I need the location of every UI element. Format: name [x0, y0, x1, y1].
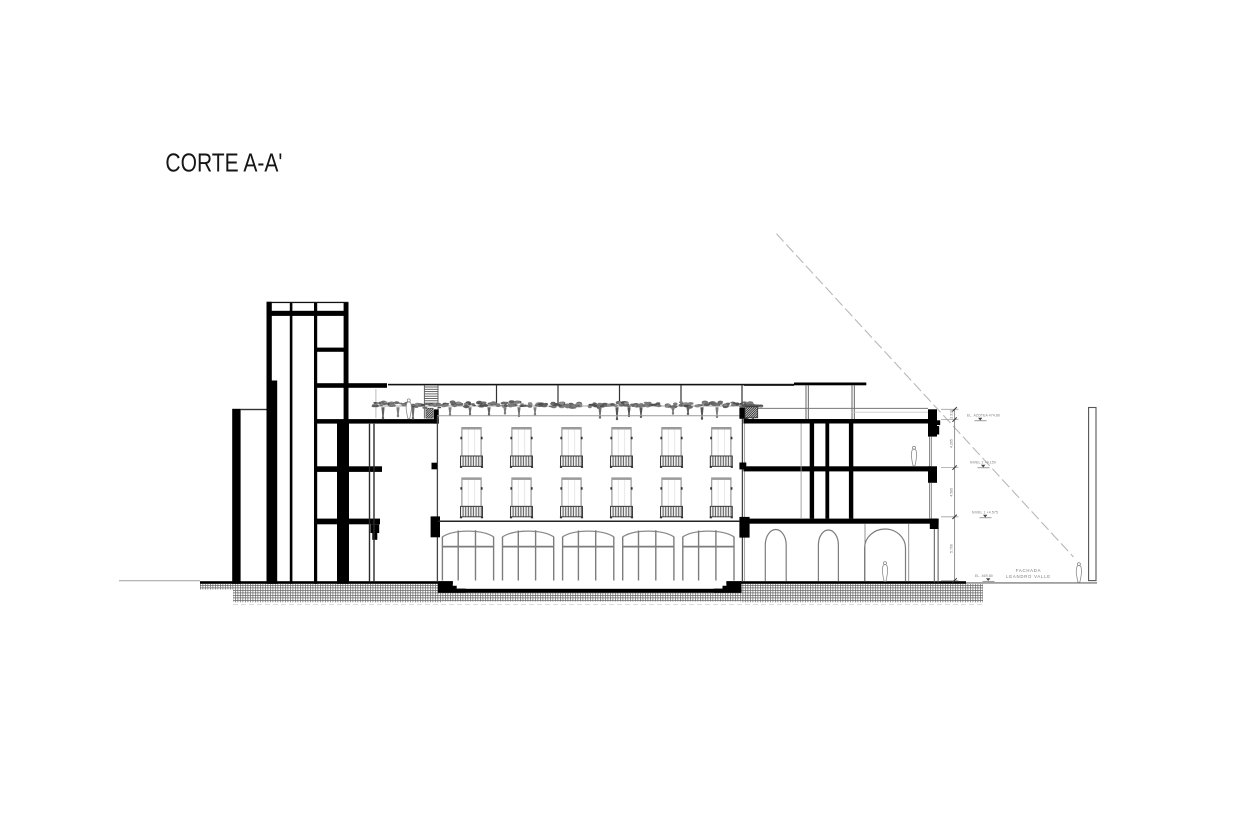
svg-text:4.500: 4.500	[949, 488, 953, 497]
svg-text:5.700: 5.700	[949, 544, 953, 553]
svg-text:LEANDRO VALLE: LEANDRO VALLE	[1006, 574, 1051, 579]
svg-text:NIVEL 1 +4.575: NIVEL 1 +4.575	[972, 511, 998, 515]
svg-text:4.205: 4.205	[949, 439, 953, 448]
svg-text:2.310: 2.310	[949, 410, 953, 419]
svg-text:FACHADA: FACHADA	[1016, 568, 1042, 573]
svg-text:CORTE A-A': CORTE A-A'	[165, 148, 282, 178]
svg-text:EL. 469.80: EL. 469.80	[975, 574, 993, 578]
svg-text:NIVEL 2 +9.150: NIVEL 2 +9.150	[970, 461, 996, 465]
svg-text:EL. AZOTEA 474.80: EL. AZOTEA 474.80	[967, 414, 1000, 418]
